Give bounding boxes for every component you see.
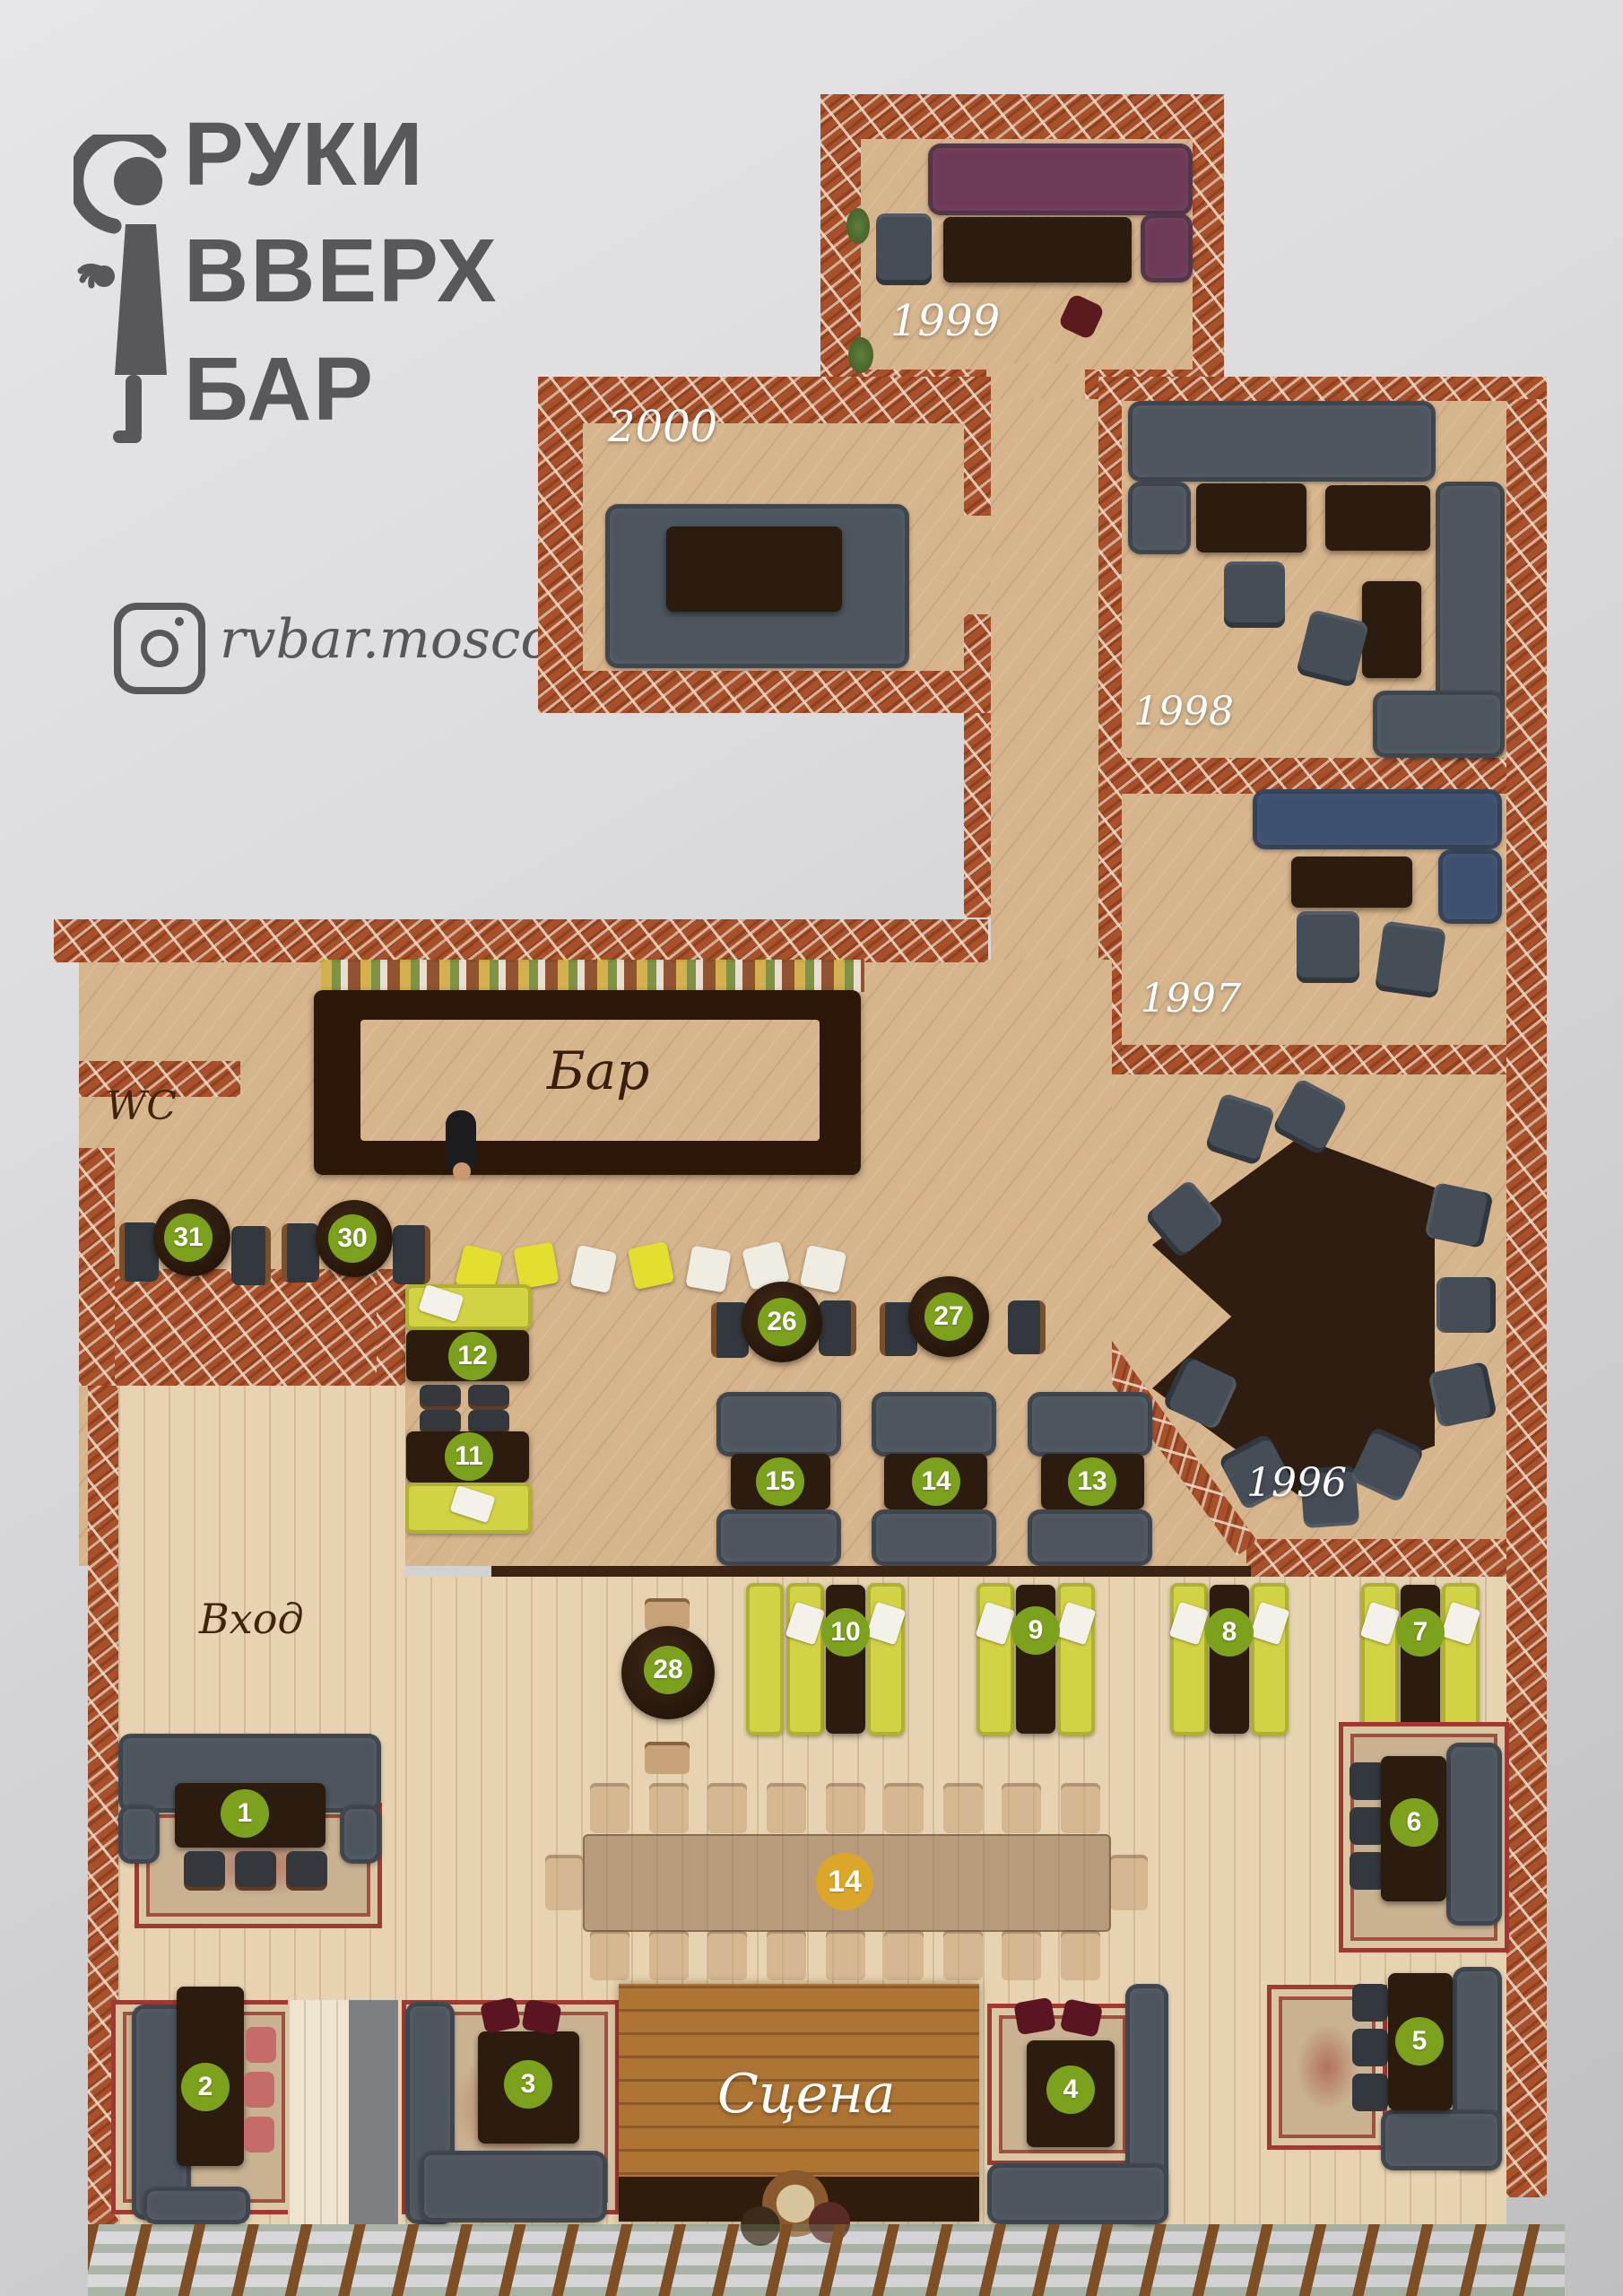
bar-stool (570, 1245, 618, 1293)
chair (1008, 1300, 1046, 1354)
bar-stool (628, 1241, 675, 1290)
table-badge-11: 11 (445, 1432, 493, 1481)
chair (826, 1783, 865, 1833)
sofa (340, 1805, 381, 1864)
instagram-icon-dot (175, 617, 184, 626)
chair (649, 1783, 689, 1833)
table (1291, 857, 1412, 908)
sofa (420, 2151, 607, 2222)
bar-stool (800, 1245, 847, 1293)
table-badge-15: 15 (756, 1457, 804, 1506)
table-badge-14: 14 (912, 1457, 960, 1506)
room-label-1997: 1997 (1141, 976, 1241, 1022)
room-label-2000: 2000 (608, 402, 717, 452)
table-badge-big-14: 14 (816, 1853, 873, 1910)
chair (884, 1783, 924, 1833)
armchair (1375, 921, 1446, 999)
chair (231, 1226, 271, 1285)
sofa (928, 143, 1193, 215)
chair (649, 1930, 689, 1980)
room-label-1998: 1998 (1133, 689, 1234, 735)
entrance-walkway (288, 2000, 349, 2224)
armchair (1297, 911, 1359, 983)
sofa (1141, 213, 1193, 283)
stool (468, 1410, 509, 1431)
chair (1350, 1762, 1385, 1800)
table (666, 526, 842, 612)
chair (1352, 2074, 1388, 2111)
wall-block (115, 1269, 377, 1387)
table-badge-27: 27 (924, 1292, 973, 1341)
instagram-icon (114, 603, 205, 694)
pouf (521, 1999, 561, 2035)
chair (1350, 1807, 1385, 1845)
chair (545, 1855, 583, 1910)
chair (282, 1223, 319, 1283)
pillow (244, 2117, 274, 2152)
table-badge-26: 26 (758, 1298, 806, 1346)
room-label-1999: 1999 (890, 296, 1000, 346)
glass-veranda-floor (88, 2224, 1565, 2296)
chair (1002, 1930, 1041, 1980)
sofa (1128, 401, 1436, 482)
chair (767, 1783, 806, 1833)
table-10 (826, 1585, 865, 1734)
instagram-icon-lens (141, 630, 178, 667)
table-8 (1210, 1585, 1249, 1734)
chair (590, 1783, 629, 1833)
right-wall (1506, 399, 1547, 2197)
sofa (1028, 1509, 1152, 1566)
sofa (118, 1805, 160, 1864)
sofa-yellow (746, 1583, 784, 1735)
corridor-wall (964, 713, 991, 918)
table-badge-10: 10 (821, 1608, 870, 1657)
hall-divider (491, 1566, 1251, 1577)
chair (645, 1742, 690, 1774)
entrance-label: Вход (199, 1595, 304, 1643)
table-badge-6: 6 (1390, 1798, 1438, 1847)
armchair (1424, 1182, 1493, 1248)
pillow (244, 2072, 274, 2108)
pouf (1013, 1997, 1056, 2036)
armchair (1436, 1277, 1496, 1333)
chair (767, 1930, 806, 1980)
bar-stool (685, 1246, 731, 1293)
sofa (143, 2187, 250, 2224)
logo-line-1: РУКИ (184, 109, 425, 199)
stool (235, 1851, 276, 1887)
bar-hall-top-wall (54, 919, 988, 962)
room-2000-doorway (959, 516, 991, 614)
table (1362, 581, 1421, 678)
chair (1061, 1930, 1100, 1980)
table (943, 217, 1132, 283)
sofa (1253, 789, 1502, 849)
sofa (872, 1509, 996, 1566)
logo-line-2: ВВЕРХ (184, 226, 499, 316)
sofa (1373, 691, 1505, 758)
chair (884, 1930, 924, 1980)
left-wall (79, 1148, 115, 1386)
chair (590, 1930, 629, 1980)
table (1196, 483, 1306, 552)
sofa (1438, 849, 1502, 924)
chair (119, 1222, 159, 1282)
table-badge-28: 28 (644, 1646, 692, 1694)
chair (1002, 1783, 1041, 1833)
stool (286, 1851, 327, 1887)
logo-figure-icon (74, 135, 190, 466)
stool (420, 1385, 461, 1406)
entrance-mat (349, 2000, 398, 2224)
table-7 (1401, 1585, 1440, 1734)
chair (1352, 1984, 1388, 2022)
chair (943, 1783, 983, 1833)
table-badge-13: 13 (1068, 1457, 1116, 1506)
stool (468, 1385, 509, 1406)
table-badge-1: 1 (221, 1789, 269, 1838)
chair (1350, 1852, 1385, 1890)
table-badge-9: 9 (1011, 1606, 1060, 1655)
sofa (987, 2163, 1168, 2224)
room-label-1996: 1996 (1246, 1460, 1347, 1506)
karaoke-bottom-wall (1246, 1539, 1506, 1577)
table-badge-8: 8 (1205, 1608, 1254, 1657)
table-badge-3: 3 (504, 2060, 552, 2109)
chair (1061, 1783, 1100, 1833)
table (1325, 485, 1430, 551)
armchair (1224, 561, 1285, 628)
plant (848, 337, 873, 373)
chair (707, 1930, 747, 1980)
armchair (876, 213, 932, 285)
floorplan-canvas: РУКИ ВВЕРХ БАР rvbar.moscow 1999 2000 19… (0, 0, 1623, 2296)
stool (420, 1410, 461, 1431)
sofa (1381, 2109, 1502, 2170)
bar-stool (513, 1242, 559, 1290)
chair (819, 1300, 856, 1356)
bar-label: Бар (547, 1040, 649, 1101)
table-badge-4: 4 (1046, 2066, 1095, 2114)
sofa (1446, 1743, 1502, 1926)
bar-bottle-shelf (321, 960, 864, 992)
chair (707, 1783, 747, 1833)
table-badge-31: 31 (164, 1213, 213, 1262)
wc-label: WC (106, 1083, 177, 1129)
table-badge-5: 5 (1395, 2017, 1444, 2066)
sofa (716, 1509, 841, 1566)
sofa (716, 1392, 841, 1457)
sofa (1028, 1392, 1152, 1457)
chair (1352, 2029, 1388, 2066)
chair (826, 1930, 865, 1980)
table-badge-12: 12 (448, 1332, 497, 1380)
table-badge-7: 7 (1396, 1608, 1445, 1657)
plant (846, 208, 870, 244)
sofa (872, 1392, 996, 1457)
chair (393, 1225, 430, 1284)
table-badge-2: 2 (181, 2063, 230, 2111)
chair (943, 1930, 983, 1980)
bartender-head (453, 1162, 471, 1180)
table-badge-30: 30 (328, 1214, 377, 1263)
chair (1110, 1855, 1148, 1910)
stool (184, 1851, 225, 1887)
stage-label: Сцена (717, 2063, 896, 2126)
logo-line-3: БАР (184, 344, 375, 434)
sofa (1128, 482, 1191, 554)
pillow (246, 2027, 276, 2063)
